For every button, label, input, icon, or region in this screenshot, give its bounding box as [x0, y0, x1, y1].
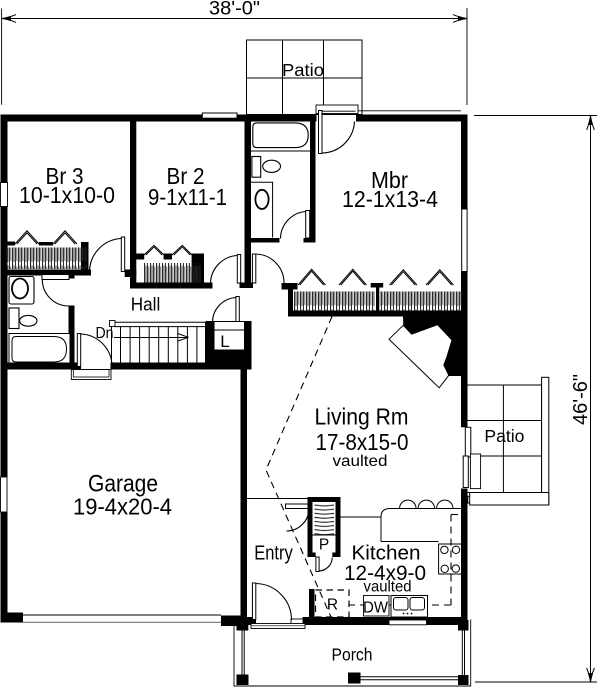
svg-text:12-1x13-4: 12-1x13-4 — [342, 186, 438, 212]
svg-text:Patio: Patio — [282, 60, 324, 80]
svg-text:vaulted: vaulted — [333, 453, 388, 470]
svg-text:19-4x20-4: 19-4x20-4 — [73, 494, 172, 520]
svg-text:Porch: Porch — [332, 645, 373, 665]
svg-text:R: R — [327, 597, 338, 614]
svg-text:Entry: Entry — [254, 542, 293, 565]
svg-text:L: L — [220, 332, 229, 351]
svg-text:Hall: Hall — [131, 294, 161, 315]
svg-text:10-1x10-0: 10-1x10-0 — [19, 182, 115, 208]
svg-text:vaulted: vaulted — [364, 579, 412, 596]
svg-text:Patio: Patio — [484, 426, 524, 446]
svg-text:38'-0": 38'-0" — [209, 0, 260, 20]
svg-text:17-8x15-0: 17-8x15-0 — [316, 429, 409, 455]
svg-text:Living Rm: Living Rm — [315, 404, 409, 430]
svg-text:9-1x11-1: 9-1x11-1 — [148, 184, 227, 210]
svg-text:DW: DW — [363, 600, 389, 617]
svg-text:46'-6": 46'-6" — [569, 374, 592, 425]
